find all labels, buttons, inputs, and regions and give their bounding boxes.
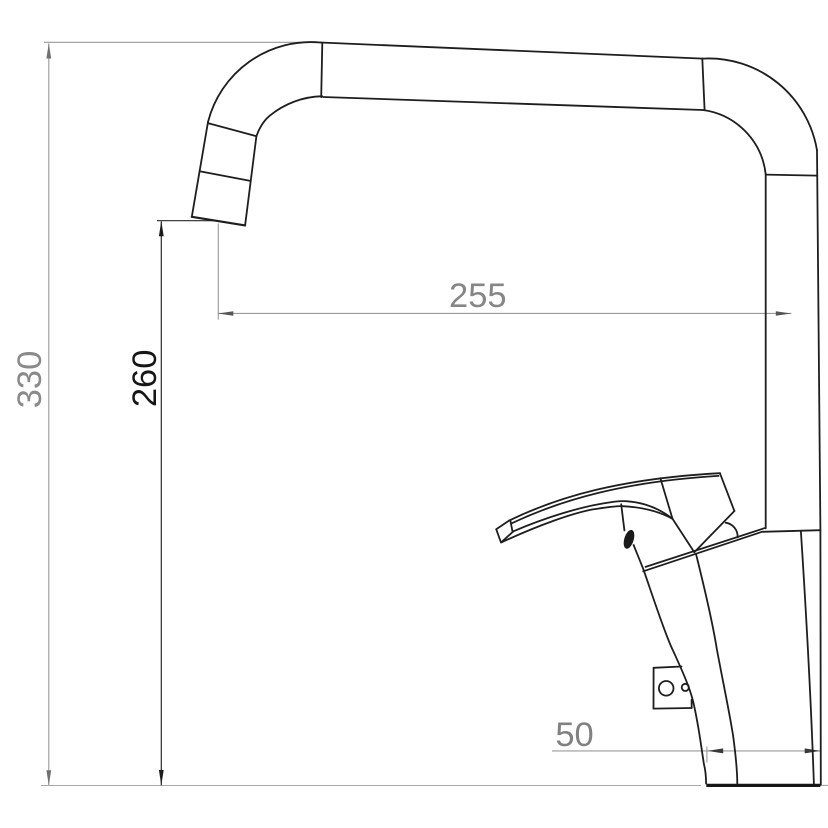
svg-text:255: 255 [449,277,507,315]
svg-text:50: 50 [555,716,593,754]
svg-text:330: 330 [11,351,49,409]
svg-text:260: 260 [126,350,164,408]
